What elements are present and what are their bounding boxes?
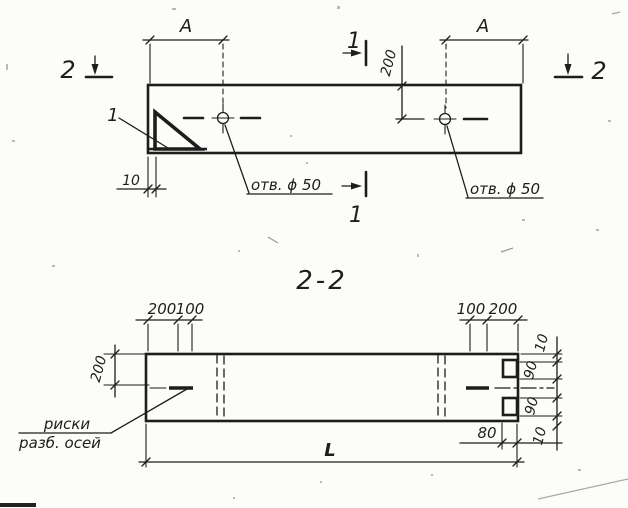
dim-height-200: 200 [88, 345, 149, 397]
hidden-lines-left [217, 355, 224, 420]
plan-view: 1 A A 1 [60, 16, 606, 228]
scan-stray-line [501, 248, 513, 252]
dim-a-left: A [143, 16, 229, 106]
dim-top-right-200: 200 [489, 300, 518, 318]
dim-hole-offset-label: 200 [378, 48, 400, 78]
hole-label-right: отв. ϕ 50 [470, 180, 540, 198]
scan-stray-line [612, 12, 620, 14]
arrowhead-down-icon [565, 64, 572, 75]
section-view-title: 2-2 [296, 266, 347, 296]
section-cut-2-right: 2 [555, 54, 607, 85]
detail-leader [119, 118, 168, 148]
section-cut-2-left: 2 [60, 56, 112, 84]
notch-square-bottom [503, 398, 517, 415]
leader-line [225, 125, 249, 193]
hidden-lines-right [438, 355, 445, 420]
hole-right [396, 105, 487, 134]
scan-stray-line [538, 479, 628, 499]
section-cut-1-top-label: 1 [347, 29, 361, 54]
section-cut-1-top: 1 [343, 29, 366, 65]
dim-length-L: L [139, 424, 524, 467]
dim-a-right-label: A [476, 16, 489, 37]
dim-end-offset-10: 10 [117, 157, 166, 197]
dims-top-left: 200 100 [136, 300, 204, 351]
dim-top-left-100: 100 [176, 300, 205, 318]
axis-note-line2: разб. осей [18, 434, 101, 452]
arrowhead-right-icon [351, 183, 362, 190]
leader-line [111, 389, 187, 433]
hole-left [184, 104, 260, 133]
dims-right-side: 10 90 90 10 [520, 332, 562, 450]
dim-top-right-100: 100 [457, 300, 486, 318]
scan-stray-line [268, 237, 278, 243]
dim-right-10-top: 10 [532, 332, 552, 353]
dim-length-label: L [324, 440, 335, 461]
blueprint-sheet: 1 A A 1 [0, 0, 628, 508]
section-cut-2-right-label: 2 [591, 57, 606, 85]
hole-callout-left: отв. ϕ 50 [225, 125, 332, 194]
hole-callout-right: отв. ϕ 50 [447, 126, 543, 198]
beam-drawing: 1 A A 1 [0, 0, 628, 508]
leader-line [447, 126, 468, 197]
dim-height-label: 200 [88, 354, 110, 384]
section-view: 200 100 100 200 200 риск [18, 300, 562, 467]
arrowhead-down-icon [92, 64, 99, 75]
hole-label-left: отв. ϕ 50 [251, 176, 321, 194]
section-beam-outline [146, 354, 518, 421]
dims-top-right: 100 200 [457, 300, 527, 351]
detail-mark-label: 1 [107, 105, 118, 126]
dim-a-left-label: A [179, 16, 192, 37]
section-cut-1-bottom: 1 [342, 172, 366, 228]
detail-mark-1: 1 [107, 105, 168, 148]
section-cut-2-left-label: 2 [60, 56, 75, 84]
section-cut-1-bottom-label: 1 [349, 203, 363, 228]
axis-note-line1: риски [43, 415, 91, 433]
dim-top-left-200: 200 [148, 300, 177, 318]
dim-notch-label: 80 [477, 424, 496, 442]
dim-end-offset-label: 10 [122, 173, 140, 189]
notch-square-top [503, 360, 517, 377]
dim-a-right: A [440, 16, 528, 108]
